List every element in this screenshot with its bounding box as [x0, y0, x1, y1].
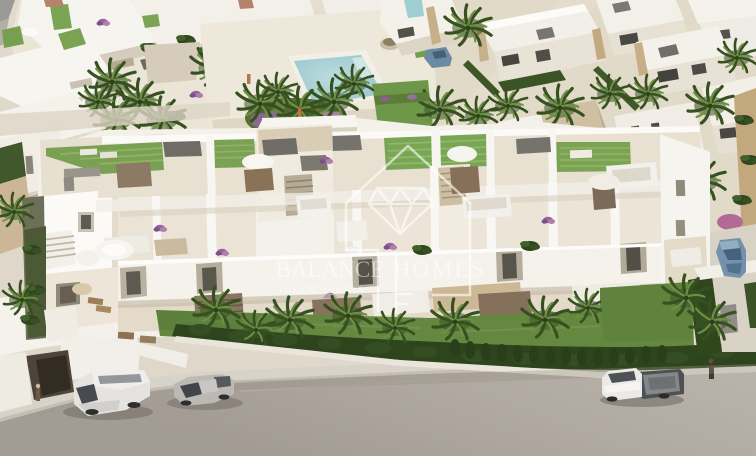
svg-text:HOMES: HOMES	[393, 257, 486, 282]
svg-text:INMOBILIARIA: INMOBILIARIA	[279, 285, 365, 297]
svg-text:BALANCE: BALANCE	[276, 257, 385, 282]
